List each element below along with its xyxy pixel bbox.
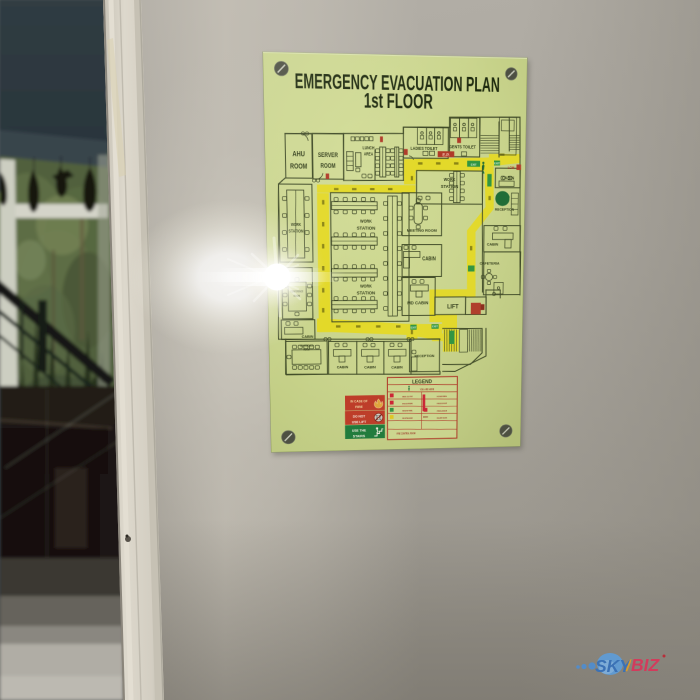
svg-text:BIZ: BIZ <box>631 655 661 675</box>
